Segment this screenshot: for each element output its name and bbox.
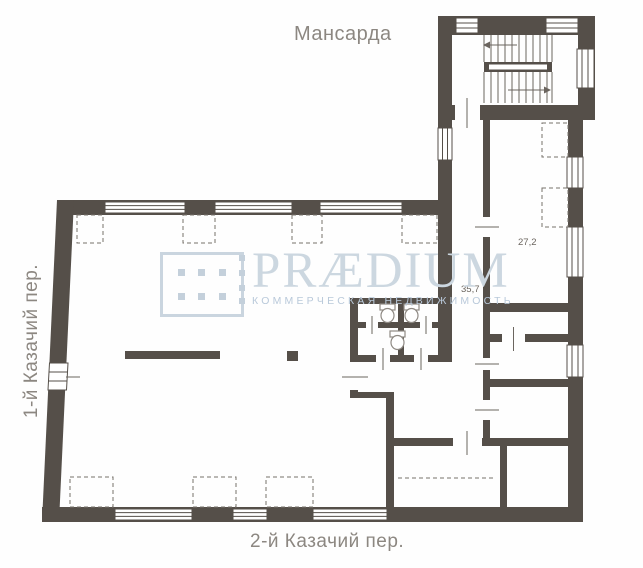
stair-treads-upper [484, 35, 552, 62]
left-wall-window [48, 363, 80, 390]
floor-title: Мансарда [294, 23, 392, 46]
exterior-window-right-2 [567, 227, 583, 277]
hall-right-wall [386, 398, 394, 508]
stairwell-window-right [577, 49, 594, 88]
top-window-3 [320, 202, 402, 213]
bottom-rooms-divider [500, 446, 507, 508]
partition-c [490, 379, 573, 387]
floor-plan-page: 27,2 35,7 PRÆDIUM КОММЕРЧЕСКАЯ НЕДВИЖИМО… [0, 0, 643, 568]
top-window-1 [105, 202, 185, 213]
stair-treads-lower [484, 72, 552, 103]
exterior-window-right-3 [567, 345, 583, 377]
bottom-window-2 [233, 509, 267, 520]
bathroom-block [350, 298, 448, 370]
room-area-27: 27,2 [518, 237, 537, 248]
toilet-icon [380, 304, 395, 323]
stairwell-window-top-right [546, 18, 578, 33]
street-label-bottom: 2-й Казачий пер. [250, 531, 404, 553]
left-exterior-wall [42, 200, 74, 522]
toilet-icon [390, 331, 405, 350]
room-area-35: 35,7 [461, 284, 480, 295]
floor-plan-drawing: 27,2 35,7 [0, 0, 643, 568]
partition-a [490, 303, 583, 312]
right-wing [342, 120, 583, 522]
bottom-window-3 [313, 509, 387, 520]
exterior-window-right-1 [567, 157, 583, 188]
stairwell [438, 16, 595, 128]
bottom-window-1 [115, 509, 192, 520]
wing-window-left [438, 128, 452, 160]
stairwell-window-top-left [456, 18, 478, 33]
top-window-2 [215, 202, 292, 213]
stair-stringer [484, 62, 552, 72]
dashed-niches [70, 123, 568, 507]
stair-arrow-right [508, 87, 551, 94]
interior-bar [125, 351, 220, 359]
interior-column [287, 351, 298, 361]
street-label-left: 1-й Казачий пер. [21, 261, 45, 421]
toilet-icon [404, 304, 419, 323]
